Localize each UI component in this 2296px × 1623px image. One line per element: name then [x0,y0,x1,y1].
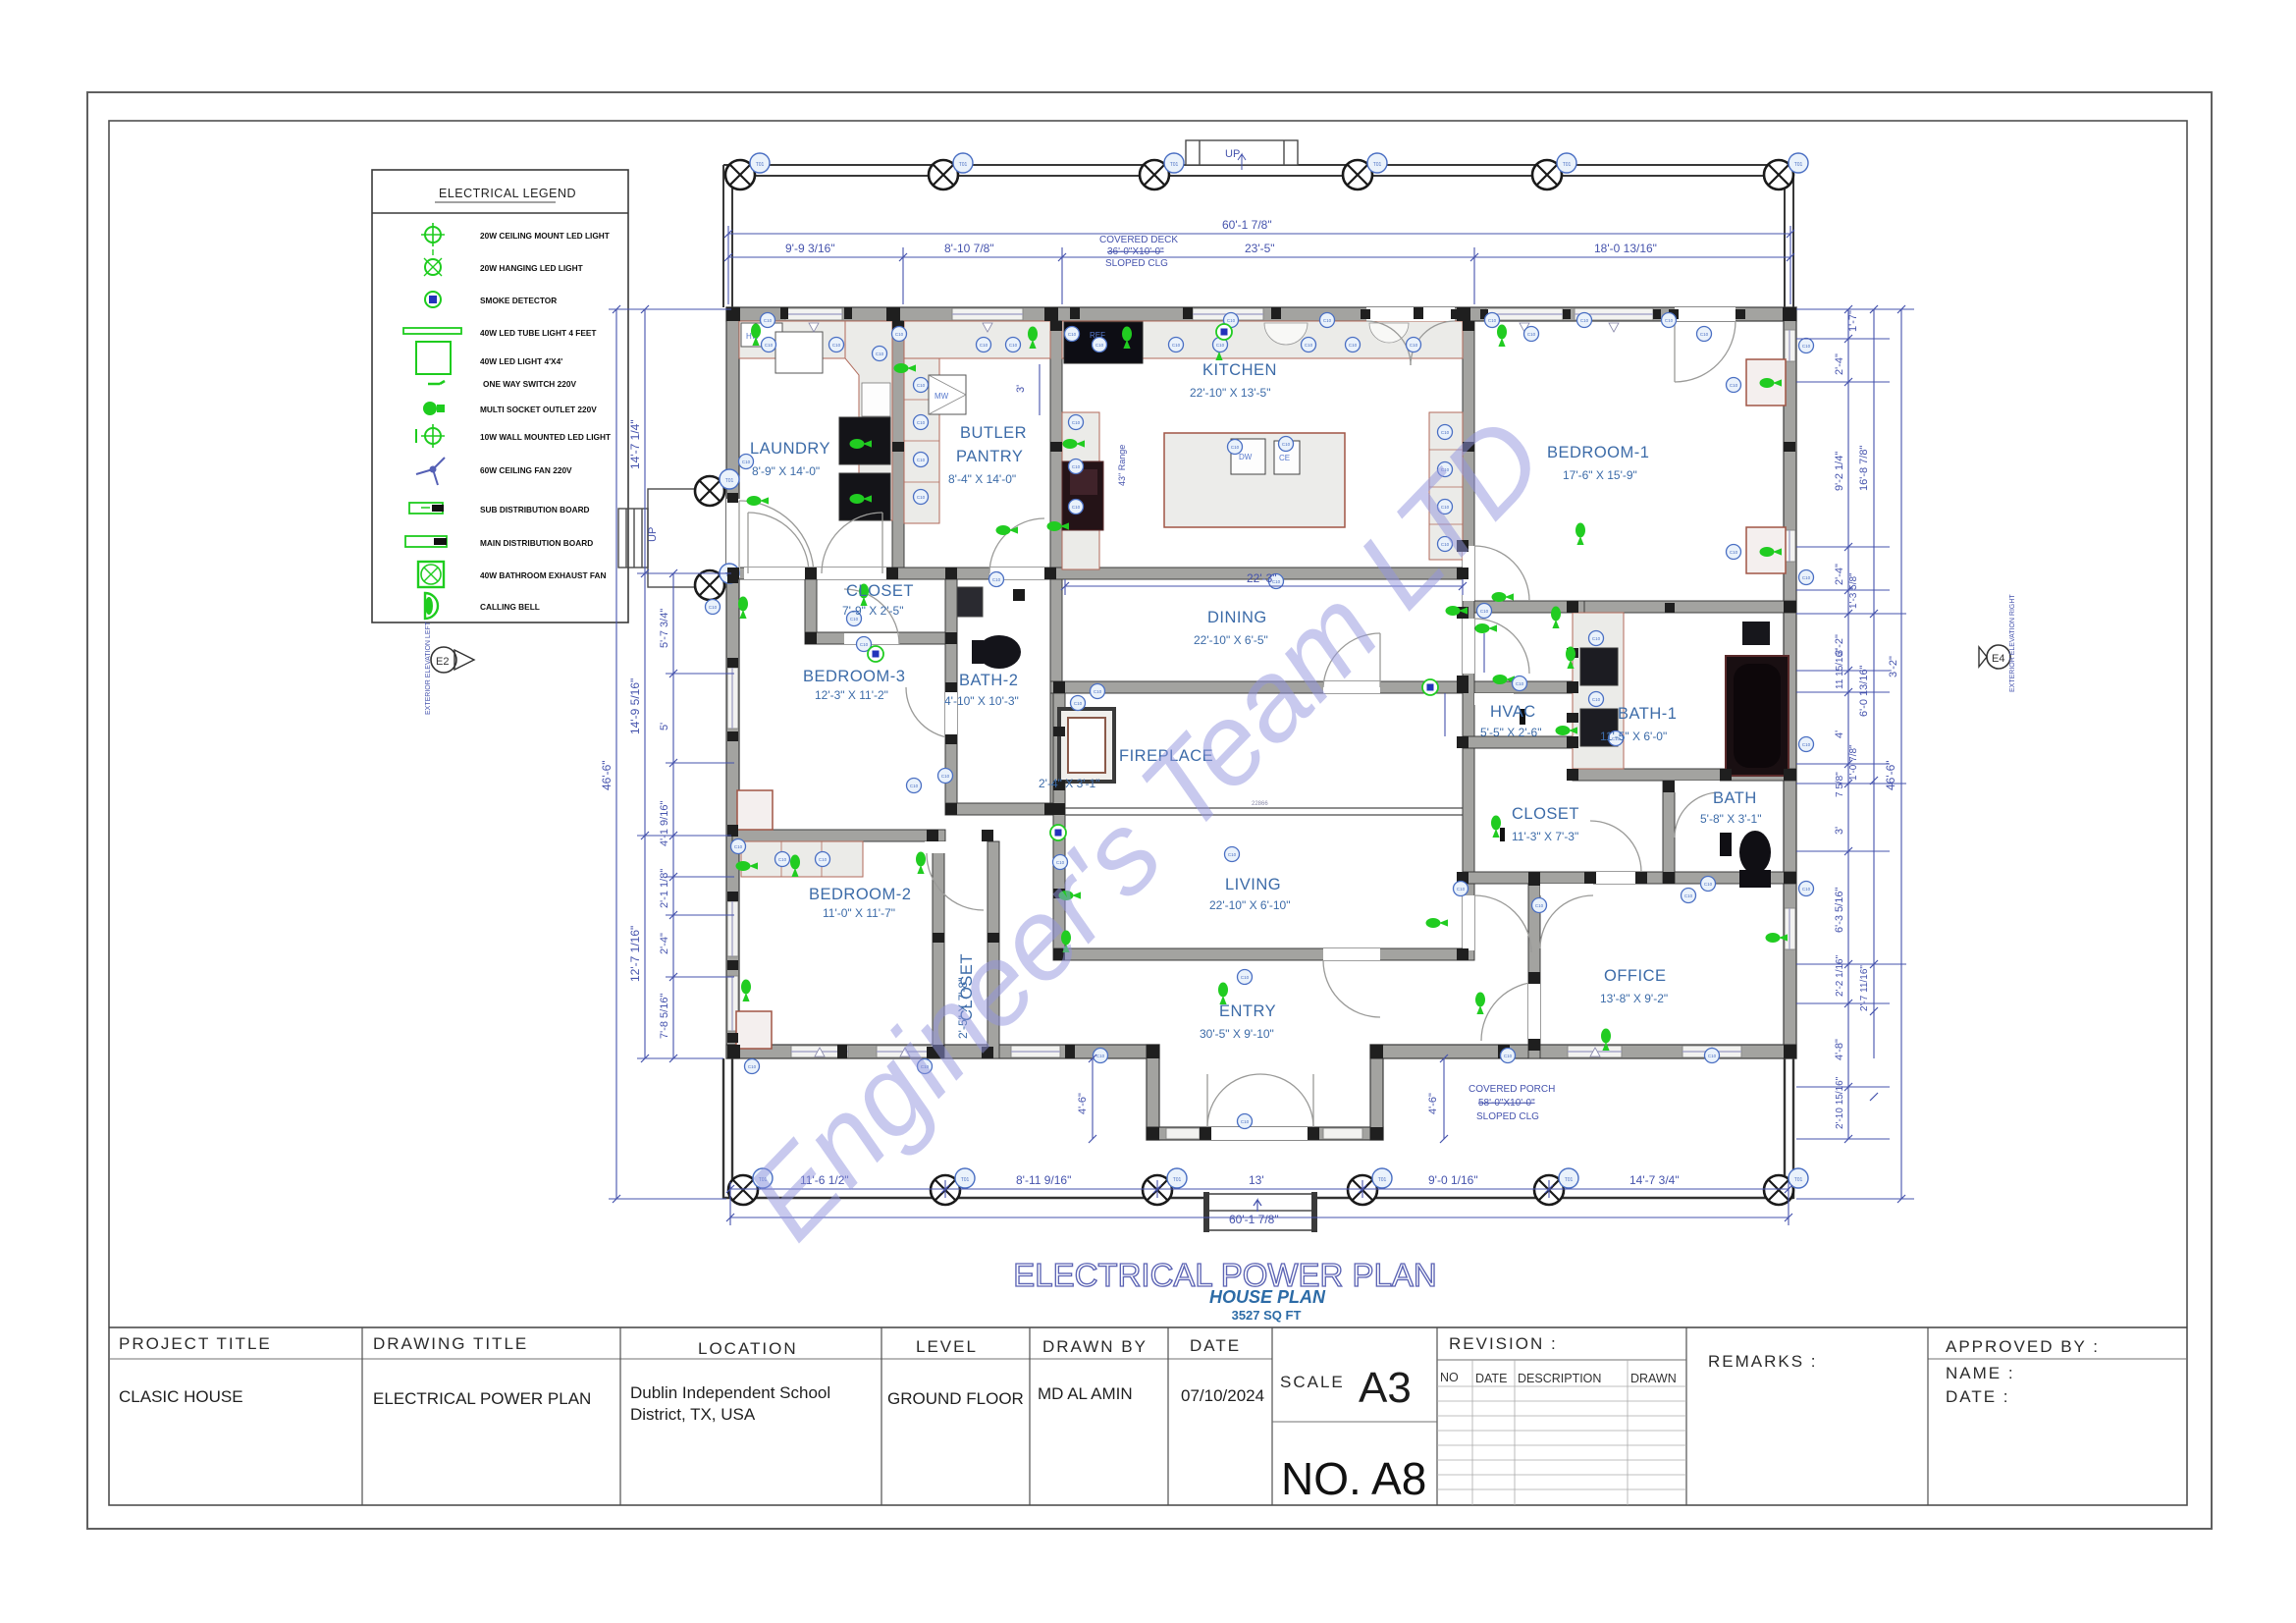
svg-text:17'-6" X 15'-9": 17'-6" X 15'-9" [1563,468,1637,482]
svg-text:DW: DW [1239,453,1253,461]
svg-text:BEDROOM-2: BEDROOM-2 [809,886,911,903]
svg-text:3527 SQ FT: 3527 SQ FT [1232,1308,1302,1323]
svg-text:CLOSET: CLOSET [846,582,914,600]
svg-text:2'-2 1/16": 2'-2 1/16" [1835,954,1845,997]
svg-text:7'-8 5/16": 7'-8 5/16" [659,994,670,1039]
svg-text:12'-3" X 11'-2": 12'-3" X 11'-2" [815,688,888,702]
svg-text:2'-7 11/16": 2'-7 11/16" [1859,965,1870,1011]
svg-text:MAIN DISTRIBUTION BOARD: MAIN DISTRIBUTION BOARD [480,538,593,548]
svg-text:4'-8": 4'-8" [1834,1039,1845,1060]
svg-text:3'-2": 3'-2" [1888,656,1899,677]
svg-text:22'-10" X 6'-10": 22'-10" X 6'-10" [1209,898,1290,912]
svg-text:12'-7 1/16": 12'-7 1/16" [628,926,642,982]
svg-text:30'-5" X 9'-10": 30'-5" X 9'-10" [1200,1027,1274,1041]
svg-text:2'-1 1/8": 2'-1 1/8" [659,869,670,908]
svg-text:4'-10" X 10'-3": 4'-10" X 10'-3" [944,694,1019,708]
svg-text:UP: UP [1225,148,1240,160]
svg-text:HOUSE PLAN: HOUSE PLAN [1209,1287,1326,1307]
svg-text:13'-8" X 9'-2": 13'-8" X 9'-2" [1600,992,1668,1005]
svg-text:EXTERIOR ELEVATION RIGHT: EXTERIOR ELEVATION RIGHT [2009,594,2016,692]
svg-text:20W CEILING MOUNT LED LIGHT: 20W CEILING MOUNT LED LIGHT [480,231,610,241]
svg-text:14'-7 3/4": 14'-7 3/4" [1629,1173,1680,1187]
svg-text:DATE :: DATE : [1946,1387,2010,1406]
svg-text:REVISION :: REVISION : [1449,1334,1558,1353]
svg-text:11'-3" X 7'-3": 11'-3" X 7'-3" [1512,830,1578,843]
svg-text:SCALE: SCALE [1280,1373,1345,1391]
svg-text:BATH: BATH [1713,789,1757,807]
svg-text:5'-5" X 2'-6": 5'-5" X 2'-6" [1480,726,1541,739]
svg-text:3': 3' [1834,827,1845,835]
svg-text:NO. A8: NO. A8 [1281,1453,1426,1504]
svg-text:CLOSET: CLOSET [1512,805,1579,823]
svg-text:36'-0"X10'-0": 36'-0"X10'-0" [1107,246,1164,257]
svg-text:REMARKS :: REMARKS : [1708,1352,1818,1371]
svg-text:60'-1 7/8": 60'-1 7/8" [1222,218,1272,232]
svg-text:2'-4": 2'-4" [659,933,670,954]
svg-text:5'-8" X 3'-1": 5'-8" X 3'-1" [1700,812,1761,826]
svg-text:GROUND FLOOR: GROUND FLOOR [887,1389,1024,1408]
svg-text:SLOPED CLG: SLOPED CLG [1476,1111,1539,1122]
svg-text:MW: MW [934,392,949,401]
svg-text:2'-4": 2'-4" [1834,564,1845,585]
svg-text:ENTRY: ENTRY [1219,1002,1276,1020]
svg-text:NO: NO [1440,1371,1459,1384]
svg-text:4'-1 9/16": 4'-1 9/16" [659,801,670,846]
svg-text:HVAC: HVAC [1490,703,1536,721]
svg-text:4'-6": 4'-6" [1077,1093,1089,1114]
svg-text:DATE: DATE [1475,1372,1507,1385]
svg-text:4': 4' [1834,730,1845,738]
svg-text:Dublin Independent School: Dublin Independent School [630,1383,830,1402]
svg-text:BEDROOM-3: BEDROOM-3 [803,668,905,685]
svg-text:BUTLER: BUTLER [960,424,1027,442]
svg-text:SLOPED CLG: SLOPED CLG [1105,258,1168,269]
svg-text:District, TX, USA: District, TX, USA [630,1405,756,1424]
svg-text:11'-0" X 11'-7": 11'-0" X 11'-7" [823,906,895,920]
svg-text:NAME :: NAME : [1946,1364,2015,1382]
svg-text:2'-10 15/16": 2'-10 15/16" [1835,1076,1845,1129]
svg-text:CLASIC HOUSE: CLASIC HOUSE [119,1387,243,1406]
svg-text:E4: E4 [1992,653,2004,665]
svg-text:A3: A3 [1359,1364,1412,1412]
svg-text:8'-4" X 14'-0": 8'-4" X 14'-0" [948,472,1016,486]
svg-text:7 5/8": 7 5/8" [1835,772,1845,797]
svg-text:KITCHEN: KITCHEN [1202,361,1277,379]
svg-text:8'-10 7/8": 8'-10 7/8" [944,242,994,255]
svg-text:COVERED PORCH: COVERED PORCH [1468,1084,1555,1095]
svg-text:LIVING: LIVING [1225,876,1281,893]
svg-text:DRAWN: DRAWN [1630,1372,1677,1385]
svg-text:DRAWN BY: DRAWN BY [1042,1337,1148,1356]
svg-text:EXTERIOR ELEVATION LEFT: EXTERIOR ELEVATION LEFT [425,621,432,715]
svg-text:LOCATION: LOCATION [698,1339,798,1358]
svg-text:9'-2 1/4": 9'-2 1/4" [1834,452,1845,491]
svg-text:46'-6": 46'-6" [1884,760,1897,790]
svg-text:40W LED TUBE LIGHT 4 FEET: 40W LED TUBE LIGHT 4 FEET [480,328,596,338]
svg-text:CALLING BELL: CALLING BELL [480,602,540,612]
svg-text:4'-6": 4'-6" [1427,1093,1439,1114]
svg-text:22'-3": 22'-3" [1247,571,1277,585]
svg-text:SUB DISTRIBUTION BOARD: SUB DISTRIBUTION BOARD [480,505,590,514]
svg-text:BATH-1: BATH-1 [1618,705,1677,723]
svg-text:ELECTRICAL POWER PLAN: ELECTRICAL POWER PLAN [373,1389,591,1408]
svg-text:22'-10" X 13'-5": 22'-10" X 13'-5" [1190,386,1270,400]
svg-text:APPROVED BY :: APPROVED BY : [1946,1337,2100,1356]
svg-text:23'-5": 23'-5" [1245,242,1275,255]
svg-text:2'-4" X 3'-1": 2'-4" X 3'-1" [1039,777,1099,790]
svg-text:11 15/16": 11 15/16" [1835,648,1845,689]
svg-text:11'-5" X 6'-0": 11'-5" X 6'-0" [1600,730,1667,743]
svg-text:DATE: DATE [1190,1336,1241,1355]
svg-text:14'-9 5/16": 14'-9 5/16" [628,678,642,734]
svg-text:PROJECT TITLE: PROJECT TITLE [119,1334,272,1353]
svg-text:60'-1 7/8": 60'-1 7/8" [1229,1213,1279,1226]
svg-text:MD AL AMIN: MD AL AMIN [1038,1384,1133,1403]
svg-text:LAUNDRY: LAUNDRY [750,440,830,458]
svg-text:2'-4": 2'-4" [1834,353,1845,375]
svg-text:ELECTRICAL LEGEND: ELECTRICAL LEGEND [439,187,576,200]
svg-text:07/10/2024: 07/10/2024 [1181,1386,1264,1405]
svg-text:5'-7 3/4": 5'-7 3/4" [659,609,670,648]
svg-text:COVERED DECK: COVERED DECK [1099,235,1178,245]
svg-text:LEVEL: LEVEL [916,1337,978,1356]
svg-text:9'-0 1/16": 9'-0 1/16" [1428,1173,1478,1187]
svg-text:6'-3 5/16": 6'-3 5/16" [1834,888,1845,933]
svg-text:1'-7": 1'-7" [1847,310,1859,332]
svg-text:UP: UP [647,527,659,542]
svg-text:9'-9 3/16": 9'-9 3/16" [785,242,835,255]
svg-text:40W BATHROOM EXHAUST FAN: 40W BATHROOM EXHAUST FAN [480,570,606,580]
svg-text:DESCRIPTION: DESCRIPTION [1518,1372,1601,1385]
svg-text:DRAWING TITLE: DRAWING TITLE [373,1334,528,1353]
svg-text:3': 3' [1015,385,1027,393]
svg-text:5': 5' [659,723,670,730]
svg-text:43" Range: 43" Range [1117,445,1127,486]
svg-text:8'-9" X 14'-0": 8'-9" X 14'-0" [752,464,820,478]
svg-text:ONE WAY SWITCH 220V: ONE WAY SWITCH 220V [483,379,576,389]
svg-text:13': 13' [1249,1173,1264,1187]
svg-text:10W WALL MOUNTED LED LIGHT: 10W WALL MOUNTED LED LIGHT [480,432,611,442]
svg-text:PANTRY: PANTRY [956,448,1023,465]
svg-text:BEDROOM-1: BEDROOM-1 [1547,444,1649,461]
svg-text:46'-6": 46'-6" [600,760,614,790]
svg-text:7'-9" X 2'-5": 7'-9" X 2'-5" [842,604,903,618]
svg-text:BATH-2: BATH-2 [959,672,1018,689]
svg-text:20W HANGING LED LIGHT: 20W HANGING LED LIGHT [480,263,583,273]
svg-text:CE: CE [1279,454,1290,462]
svg-text:1'-3 5/8": 1'-3 5/8" [1848,572,1859,609]
svg-text:SMOKE DETECTOR: SMOKE DETECTOR [480,296,557,305]
svg-text:60W CEILING FAN 220V: 60W CEILING FAN 220V [480,465,572,475]
svg-text:MULTI SOCKET OUTLET 220V: MULTI SOCKET OUTLET 220V [480,405,597,414]
svg-text:16'-8 7/8": 16'-8 7/8" [1858,446,1870,491]
svg-text:14'-7 1/4": 14'-7 1/4" [628,419,642,469]
svg-text:40W LED LIGHT 4'X4': 40W LED LIGHT 4'X4' [480,356,562,366]
svg-text:OFFICE: OFFICE [1604,967,1667,985]
svg-text:E2: E2 [436,656,449,668]
svg-text:18'-0 13/16": 18'-0 13/16" [1594,242,1657,255]
svg-text:8'-11 9/16": 8'-11 9/16" [1016,1173,1071,1187]
svg-text:6'-0 13/16": 6'-0 13/16" [1858,665,1870,717]
svg-text:58'-0"X10'-0": 58'-0"X10'-0" [1478,1098,1535,1109]
